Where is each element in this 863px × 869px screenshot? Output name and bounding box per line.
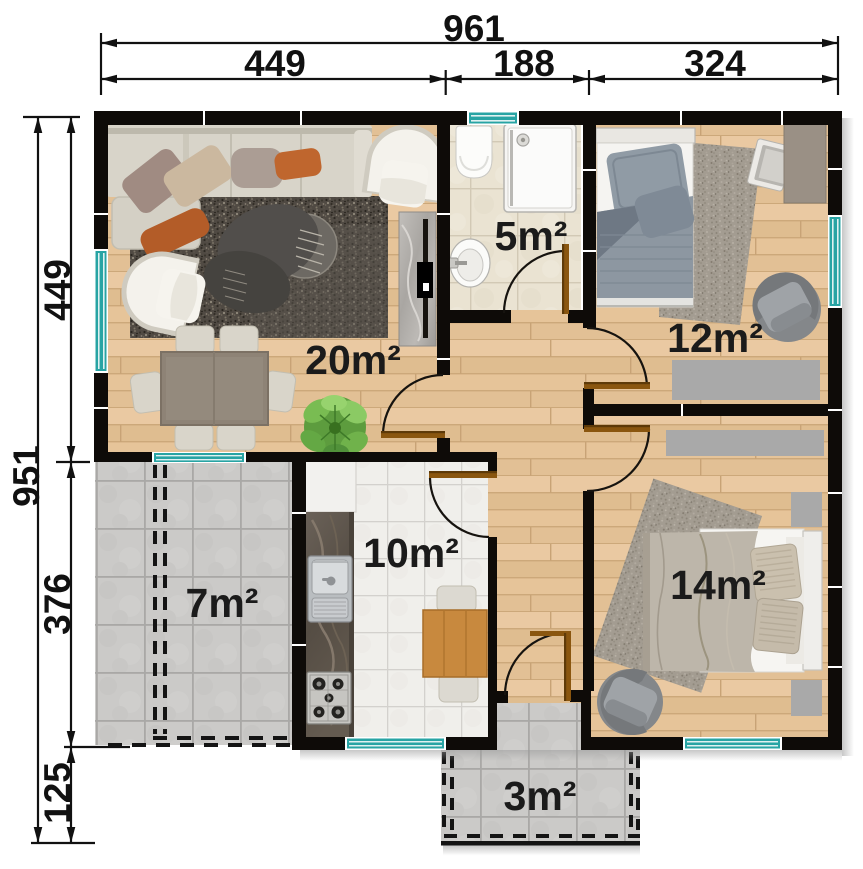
svg-text:449: 449 <box>37 259 78 321</box>
svg-text:449: 449 <box>244 43 306 84</box>
svg-text:951: 951 <box>6 445 47 507</box>
svg-text:10m²: 10m² <box>363 530 459 576</box>
svg-text:324: 324 <box>684 43 746 84</box>
svg-text:3m²: 3m² <box>504 773 577 819</box>
svg-text:20m²: 20m² <box>305 337 401 383</box>
svg-text:12m²: 12m² <box>667 315 763 361</box>
svg-text:376: 376 <box>37 573 78 635</box>
svg-text:125: 125 <box>37 762 78 824</box>
svg-text:5m²: 5m² <box>495 213 568 259</box>
svg-text:188: 188 <box>493 43 555 84</box>
svg-text:14m²: 14m² <box>670 562 766 608</box>
svg-text:7m²: 7m² <box>186 580 259 626</box>
